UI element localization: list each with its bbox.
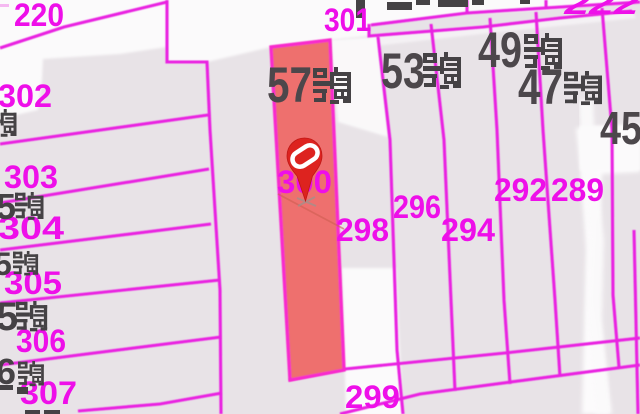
svg-text:49: 49 (478, 22, 522, 78)
svg-text:296: 296 (393, 189, 441, 225)
svg-text:5: 5 (0, 246, 12, 282)
svg-text:220: 220 (14, 0, 64, 33)
svg-text:222: 222 (559, 0, 640, 22)
svg-text:53: 53 (381, 43, 425, 99)
svg-text:45: 45 (600, 102, 640, 154)
svg-text:57: 57 (267, 57, 312, 113)
svg-text:294: 294 (441, 212, 495, 248)
svg-text:302: 302 (0, 78, 52, 114)
svg-text:298: 298 (336, 212, 389, 248)
svg-text:292: 292 (494, 172, 547, 208)
svg-text:5: 5 (0, 186, 16, 227)
svg-text:301: 301 (324, 2, 371, 38)
svg-text:289: 289 (551, 172, 604, 208)
svg-text:307: 307 (20, 375, 77, 411)
svg-text:5: 5 (0, 295, 18, 339)
svg-text:299: 299 (345, 379, 400, 414)
